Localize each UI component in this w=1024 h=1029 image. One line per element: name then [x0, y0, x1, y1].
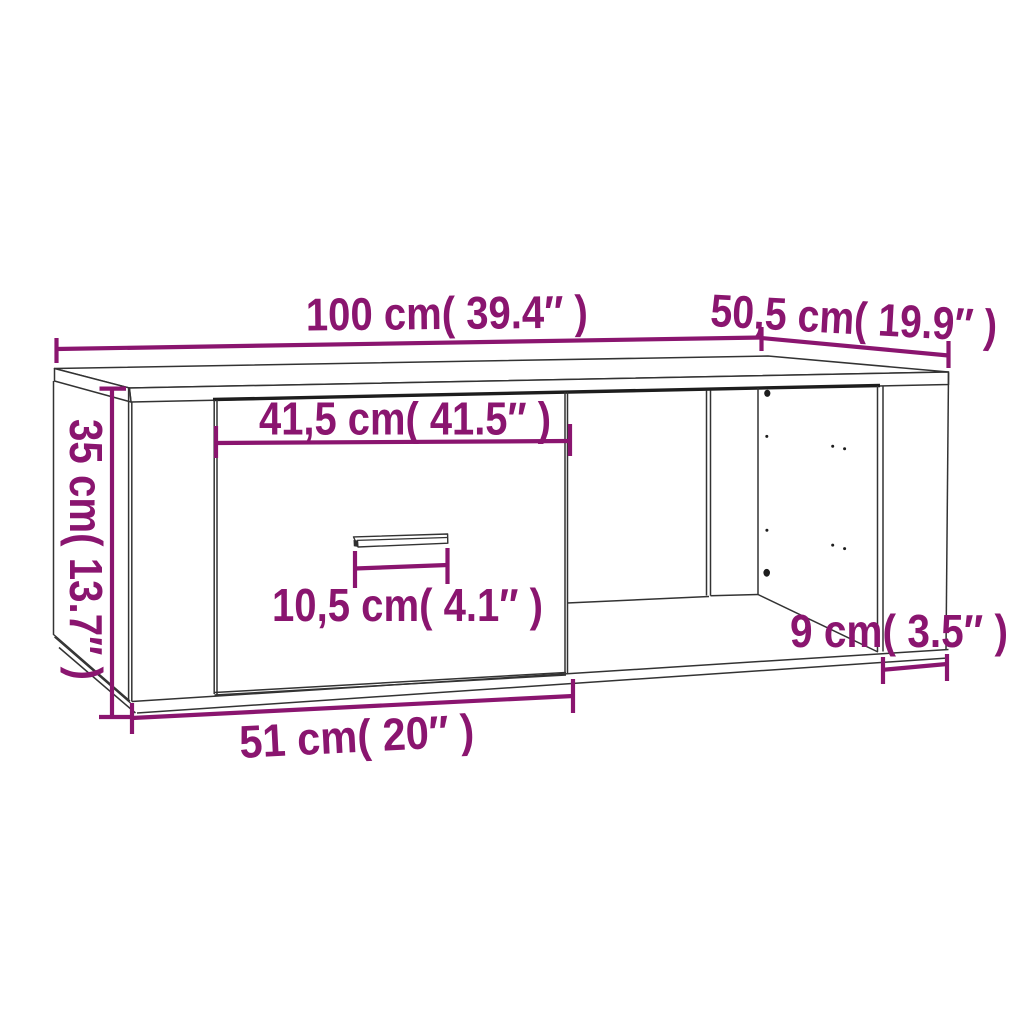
svg-text:35 cm( 13.7″ ): 35 cm( 13.7″ )	[60, 419, 112, 680]
svg-text:100 cm( 39.4″ ): 100 cm( 39.4″ )	[306, 286, 589, 341]
svg-text:10,5 cm( 4.1″ ): 10,5 cm( 4.1″ )	[272, 579, 543, 631]
svg-text:41,5 cm( 41.5″ ): 41,5 cm( 41.5″ )	[259, 393, 551, 445]
svg-text:9 cm( 3.5″ ): 9 cm( 3.5″ )	[790, 605, 1008, 657]
